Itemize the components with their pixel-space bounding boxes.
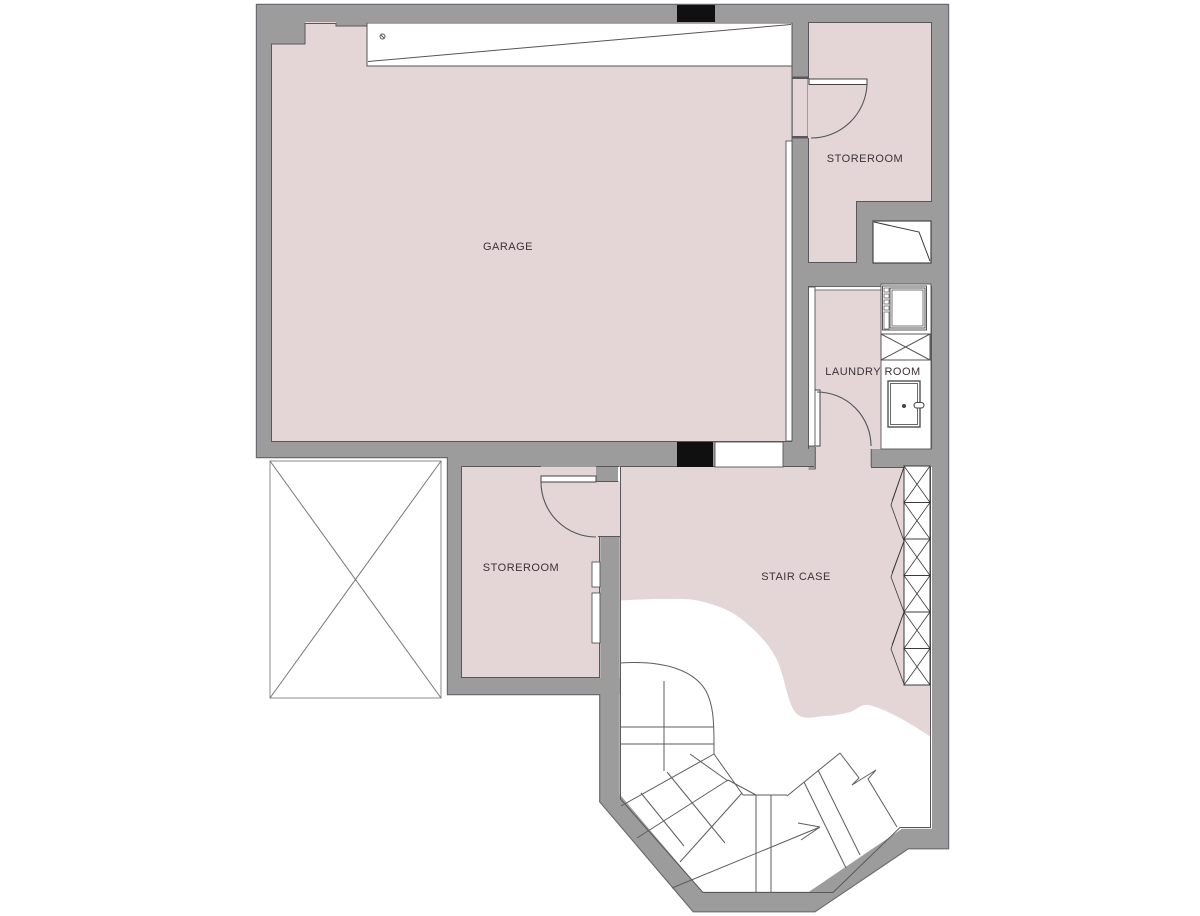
svg-text:GARAGE: GARAGE	[483, 241, 533, 253]
svg-text:LAUNDRY ROOM: LAUNDRY ROOM	[825, 366, 920, 378]
svg-text:STOREROOM: STOREROOM	[827, 153, 903, 165]
svg-text:STAIR CASE: STAIR CASE	[761, 571, 831, 583]
svg-text:STOREROOM: STOREROOM	[483, 562, 559, 574]
